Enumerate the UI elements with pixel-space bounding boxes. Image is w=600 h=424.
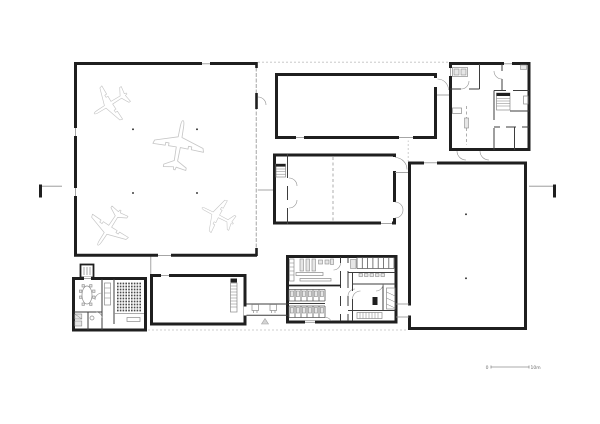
central-hall (275, 154, 408, 226)
floor-plan-sheet: 0 10m (0, 0, 600, 424)
aircraft-exhibit-1 (84, 77, 137, 131)
wc-stalls-row-2 (289, 306, 325, 318)
entrance-walkway (247, 304, 288, 324)
shop-fixtures (290, 259, 334, 281)
entrance-triangle-icon (262, 319, 269, 325)
section-marker-left (39, 185, 62, 198)
aircraft-exhibit-4 (194, 192, 241, 240)
aircraft-exhibit-2 (149, 116, 208, 174)
section-marker-right (529, 185, 556, 198)
floor-plan-drawing: 0 10m (0, 0, 600, 424)
scale-end-label: 10m (531, 365, 541, 371)
wc-stalls-row-1 (289, 290, 325, 302)
stair (231, 279, 238, 313)
locker-room (351, 258, 395, 277)
auditorium-seat-rows (117, 284, 141, 311)
aircraft-exhibit-3 (80, 199, 138, 257)
turnstile (252, 305, 259, 314)
main-exhibition-hangar (73, 61, 266, 258)
auditorium-building (74, 265, 146, 331)
column-grid-dots (465, 214, 467, 280)
scale-bar: 0 10m (486, 365, 541, 371)
stair (497, 93, 511, 110)
stair (276, 164, 286, 177)
meeting-table (79, 285, 95, 306)
turnstile (270, 305, 277, 314)
stage-lectern (127, 318, 140, 322)
north-hall (277, 75, 450, 141)
scale-zero-label: 0 (486, 365, 489, 371)
admin-building (448, 61, 529, 160)
services-building (288, 257, 397, 324)
entrance-vestibule (81, 265, 94, 278)
workshop-hall (152, 273, 249, 324)
servery-counter (357, 313, 382, 319)
walkway-to-east-hall (396, 304, 411, 317)
east-hall (410, 160, 526, 329)
